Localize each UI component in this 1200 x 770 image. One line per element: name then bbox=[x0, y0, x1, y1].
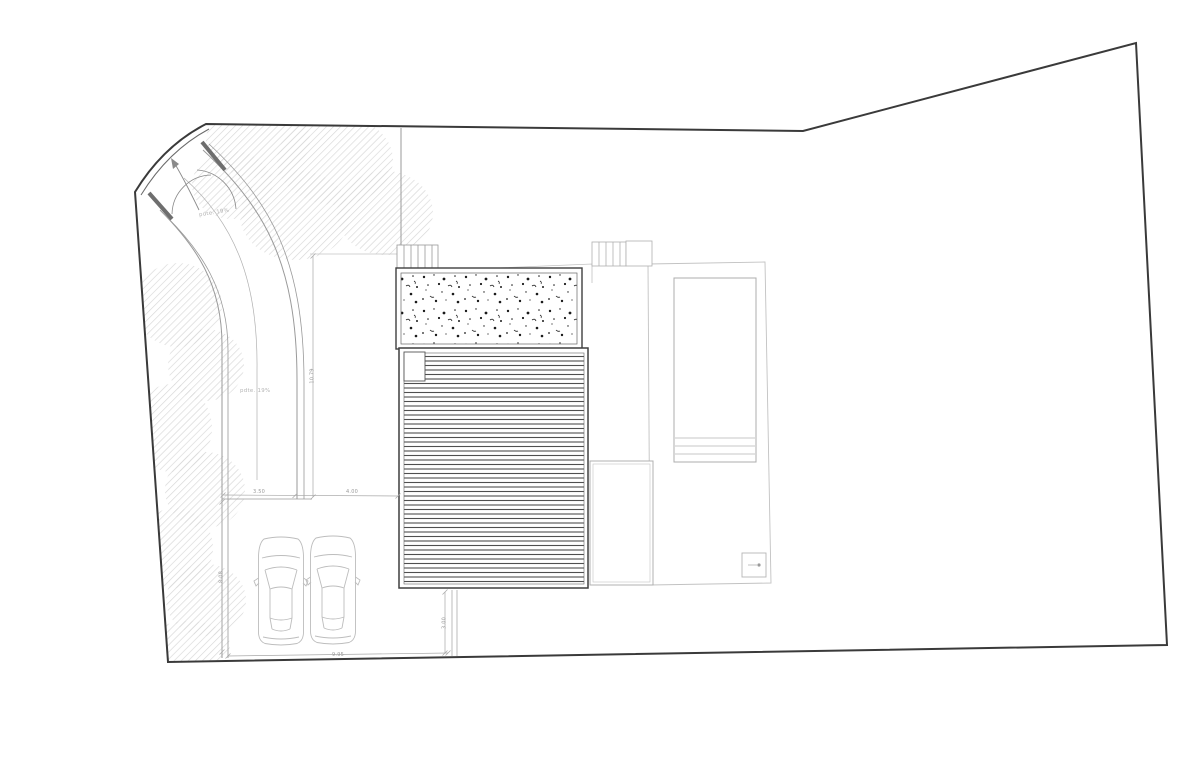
swimming-pool bbox=[674, 278, 756, 462]
site-plan-sheet: 3.50 4.00 10.79 8.08 9.95 3.00 pdte. 19%… bbox=[0, 0, 1200, 770]
deck-boundary-wall bbox=[452, 590, 457, 656]
dimension-label-parking-depth: 8.08 bbox=[219, 571, 225, 583]
dimension-label-parking-width: 9.95 bbox=[332, 652, 344, 658]
exterior-stairs-side bbox=[592, 241, 652, 266]
dimension-label-drive-width: 3.50 bbox=[253, 489, 265, 495]
dimension-label-drive-to-house: 4.00 bbox=[346, 489, 358, 495]
dimension-label-deck-offset: 3.00 bbox=[442, 617, 448, 629]
site-plan-drawing: 3.50 4.00 10.79 8.08 9.95 3.00 pdte. 19%… bbox=[0, 0, 1200, 770]
parked-car-1 bbox=[254, 537, 308, 645]
pool-basin bbox=[674, 278, 756, 462]
gravel-roof-fill bbox=[401, 273, 577, 344]
parked-car-2 bbox=[306, 536, 360, 644]
slatted-deck-fill bbox=[404, 353, 584, 584]
tree-canopy bbox=[192, 151, 272, 219]
patio bbox=[590, 461, 653, 585]
main-building-roof bbox=[396, 268, 588, 588]
tree-canopy bbox=[337, 171, 433, 255]
gate-wall-lower bbox=[149, 193, 172, 219]
dimension-label-drive-length: 10.79 bbox=[310, 368, 316, 383]
dimension-line-drive-width bbox=[223, 495, 398, 496]
utility-box bbox=[742, 553, 766, 577]
car-body bbox=[259, 537, 304, 645]
entry-arrow-head bbox=[171, 158, 179, 169]
car-body bbox=[311, 536, 356, 644]
roof-opening bbox=[404, 352, 425, 381]
slope-label-drive: pdte. 19% bbox=[240, 388, 270, 394]
